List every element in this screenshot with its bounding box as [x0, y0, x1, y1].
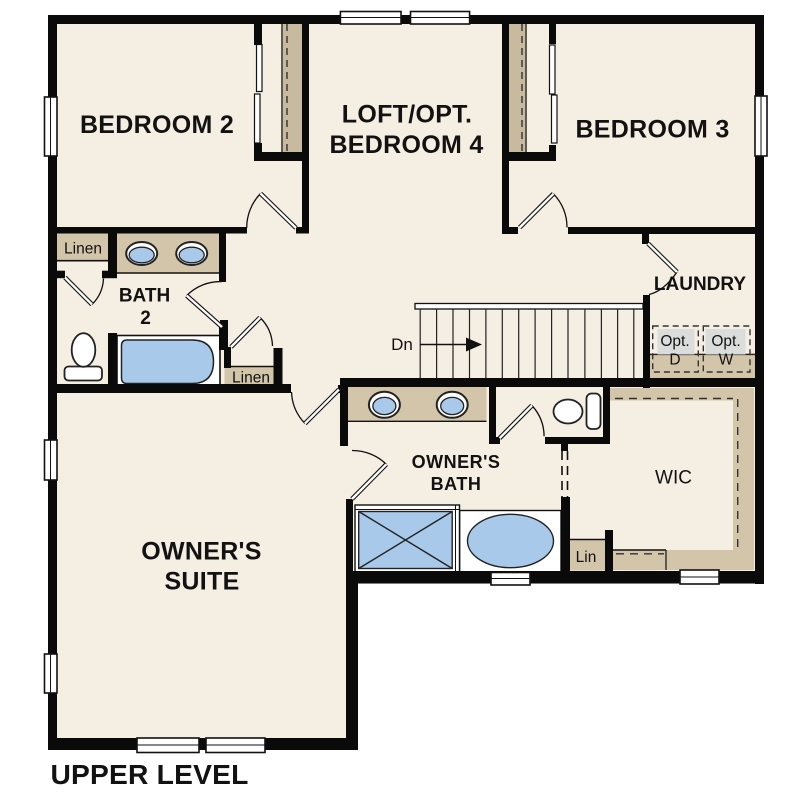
svg-text:UPPER LEVEL: UPPER LEVEL: [51, 758, 249, 790]
svg-text:BEDROOM 4: BEDROOM 4: [329, 131, 483, 159]
svg-text:OWNER'S: OWNER'S: [141, 538, 262, 566]
svg-text:BEDROOM 3: BEDROOM 3: [575, 116, 729, 144]
svg-text:2: 2: [140, 308, 151, 329]
svg-text:D: D: [669, 352, 680, 369]
svg-text:Opt.: Opt.: [660, 333, 689, 350]
svg-text:Dn: Dn: [391, 335, 413, 354]
svg-text:OWNER'S: OWNER'S: [412, 452, 501, 472]
svg-text:SUITE: SUITE: [164, 567, 239, 595]
svg-text:BEDROOM 2: BEDROOM 2: [80, 111, 234, 139]
svg-text:BATH: BATH: [431, 474, 482, 494]
svg-text:LAUNDRY: LAUNDRY: [654, 274, 747, 295]
svg-text:LOFT/OPT.: LOFT/OPT.: [342, 101, 472, 129]
svg-text:BATH: BATH: [119, 286, 170, 307]
svg-text:W: W: [719, 352, 734, 369]
svg-text:WIC: WIC: [655, 468, 692, 489]
svg-text:Lin: Lin: [576, 549, 597, 566]
svg-text:Linen: Linen: [64, 241, 102, 258]
svg-text:Linen: Linen: [232, 370, 270, 387]
svg-text:Opt.: Opt.: [711, 333, 740, 350]
